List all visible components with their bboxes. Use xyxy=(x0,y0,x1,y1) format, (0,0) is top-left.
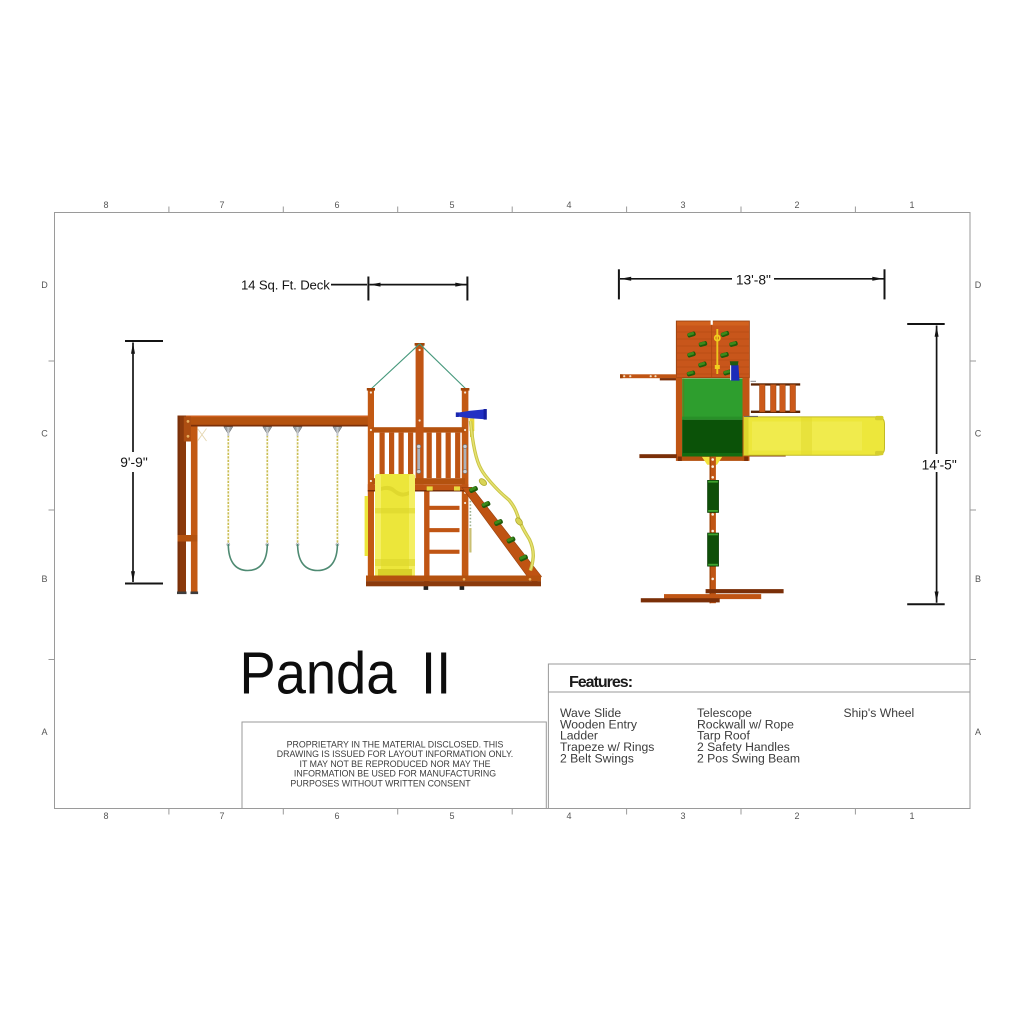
svg-text:8: 8 xyxy=(103,811,108,821)
svg-text:1: 1 xyxy=(909,200,914,210)
svg-text:1: 1 xyxy=(909,811,914,821)
svg-text:C: C xyxy=(41,429,48,439)
svg-text:7: 7 xyxy=(219,811,224,821)
svg-text:5: 5 xyxy=(449,811,454,821)
svg-text:PROPRIETARY IN THE MATERIAL DI: PROPRIETARY IN THE MATERIAL DISCLOSED. T… xyxy=(287,739,504,749)
svg-text:9'-9": 9'-9" xyxy=(120,455,148,470)
svg-text:6: 6 xyxy=(334,200,339,210)
svg-text:14 Sq. Ft. Deck: 14 Sq. Ft. Deck xyxy=(241,278,330,293)
svg-text:A: A xyxy=(975,727,981,737)
svg-text:3: 3 xyxy=(680,811,685,821)
svg-text:5: 5 xyxy=(449,200,454,210)
svg-text:Features:: Features: xyxy=(569,674,632,691)
svg-text:13'-8": 13'-8" xyxy=(736,272,771,287)
svg-text:D: D xyxy=(41,280,48,290)
svg-text:Ship's Wheel: Ship's Wheel xyxy=(844,706,915,720)
svg-text:8: 8 xyxy=(103,200,108,210)
svg-text:IT MAY NOT BE REPRODUCED NOR M: IT MAY NOT BE REPRODUCED NOR MAY THE xyxy=(300,759,491,769)
svg-text:Panda: Panda xyxy=(240,641,397,707)
svg-text:3: 3 xyxy=(680,200,685,210)
svg-text:D: D xyxy=(975,280,982,290)
svg-text:4: 4 xyxy=(566,200,571,210)
svg-text:INFORMATION BE USED FOR MANUFA: INFORMATION BE USED FOR MANUFACTURING xyxy=(294,769,496,779)
svg-text:B: B xyxy=(41,574,47,584)
svg-text:7: 7 xyxy=(219,200,224,210)
svg-text:B: B xyxy=(975,574,981,584)
svg-text:2: 2 xyxy=(794,811,799,821)
svg-text:II: II xyxy=(421,641,451,707)
svg-text:2 Pos Swing Beam: 2 Pos Swing Beam xyxy=(697,751,800,765)
svg-text:14'-5": 14'-5" xyxy=(922,457,957,472)
svg-text:A: A xyxy=(41,727,47,737)
svg-text:4: 4 xyxy=(566,811,571,821)
svg-text:2 Belt Swings: 2 Belt Swings xyxy=(560,751,634,765)
svg-text:DRAWING IS ISSUED FOR LAYOUT I: DRAWING IS ISSUED FOR LAYOUT INFORMATION… xyxy=(277,749,513,759)
svg-text:PURPOSES WITHOUT WRITTEN CONSE: PURPOSES WITHOUT WRITTEN CONSENT xyxy=(290,778,471,788)
svg-text:6: 6 xyxy=(334,811,339,821)
svg-text:2: 2 xyxy=(794,200,799,210)
svg-text:C: C xyxy=(975,429,982,439)
